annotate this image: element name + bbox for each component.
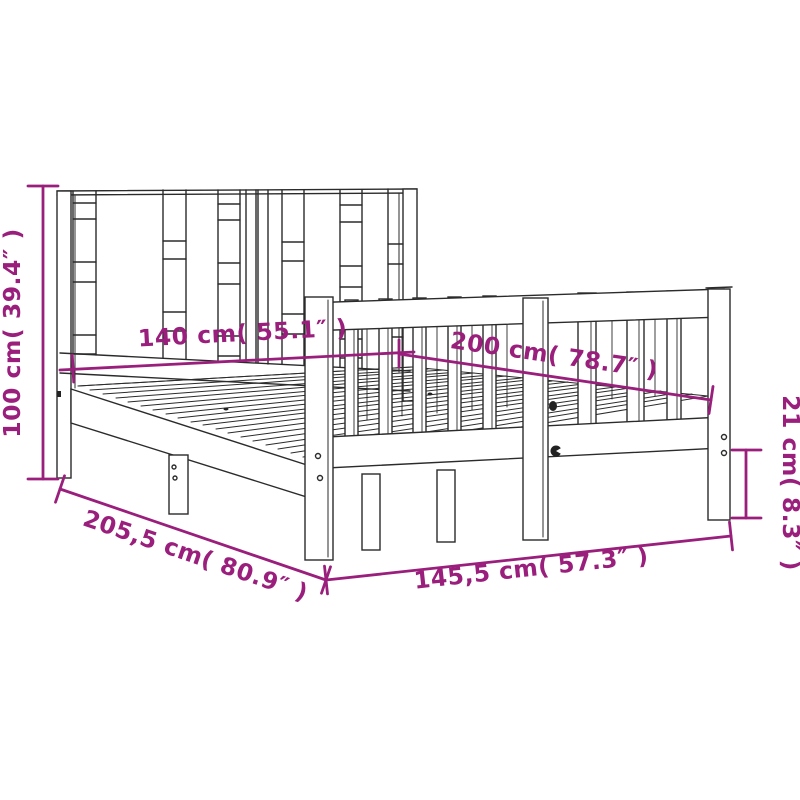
bed-frame-dimension-diagram: 100 cm( 39.4″ ) 140 cm( 55.1″ ) 200 cm( …: [0, 0, 800, 800]
frame-length-label: 205,5 cm( 80.9″ ): [80, 504, 312, 607]
dim-line-frame-height: [732, 450, 761, 518]
frame-height-label: 21 cm( 8.3″ ): [777, 395, 800, 571]
headboard-height-label: 100 cm( 39.4″ ): [0, 228, 26, 437]
diagram-canvas: 100 cm( 39.4″ ) 140 cm( 55.1″ ) 200 cm( …: [0, 0, 800, 800]
dim-line-headboard-height: [28, 186, 58, 479]
frame-width-label: 145,5 cm( 57.3″ ): [412, 541, 649, 594]
